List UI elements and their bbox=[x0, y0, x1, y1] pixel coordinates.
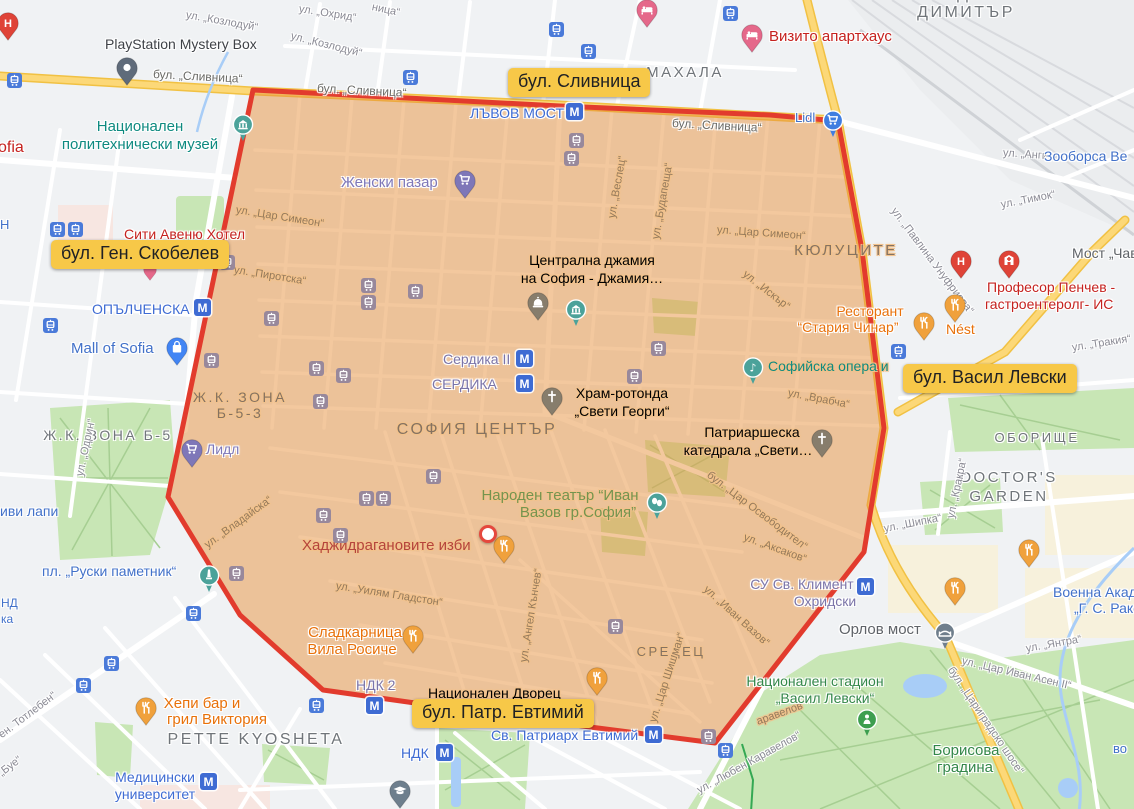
hotel-pin[interactable] bbox=[636, 0, 658, 33]
poi-fragment-n: Н bbox=[0, 218, 9, 233]
street-callout-skobelev: бул. Ген. Скобелев bbox=[51, 240, 229, 269]
district-label-line: СОФИЯ ЦЕНТЪР bbox=[397, 421, 557, 439]
metro-station-label-sv-patriarh-evtimiy: Св. Патриарх Евтимий bbox=[491, 728, 638, 744]
poi-rotonda: Храм-ротонда bbox=[576, 386, 668, 402]
poi-mall-of-sofia: Mall of Sofia bbox=[71, 341, 154, 358]
poi-divi-lapi: иви лапи bbox=[0, 504, 58, 520]
metro-icon-su-kliment-ohridski[interactable]: M bbox=[857, 578, 874, 595]
poi-naroden-teatar: Вазов гр.София” bbox=[520, 505, 636, 522]
metro-station-label-lavov-most: ЛЪВОВ МОСТ bbox=[470, 106, 564, 122]
poi-vizito: Визито апартхаус bbox=[769, 29, 892, 46]
tram-stop-icon[interactable] bbox=[43, 318, 58, 333]
metro-icon-opalchenska[interactable]: M bbox=[194, 299, 211, 316]
poi-vila-rosiche: Сладкарница bbox=[308, 625, 402, 642]
restaurant-pin-doctors[interactable] bbox=[1018, 539, 1040, 573]
tram-stop-icon-zone[interactable] bbox=[313, 394, 328, 409]
tram-stop-icon-zone[interactable] bbox=[569, 133, 584, 148]
mall-pin[interactable] bbox=[166, 337, 188, 371]
museum-pin-dzhamiya[interactable] bbox=[565, 299, 587, 334]
poi-katedrala: Патриаршеска bbox=[704, 425, 799, 441]
district-label-line: DOCTOR'S bbox=[960, 468, 1058, 487]
map-canvas[interactable]: МАХАЛАХАДЖИДИМИТЪРКЮЛУЦИТЕЖ.К. ЗОНАБ-5-3… bbox=[0, 0, 1134, 809]
metro-icon-ndk-2[interactable]: M bbox=[366, 697, 383, 714]
tram-stop-icon[interactable] bbox=[309, 698, 324, 713]
metro-station-label-serdika-2: Сердика II bbox=[443, 352, 510, 368]
poi-most-chavdar: Мост „Чавдар“ bbox=[1072, 246, 1134, 262]
street-label: ул. „Иван Вазов“ bbox=[701, 584, 772, 649]
metro-station-label-serdika: СЕРДИКА bbox=[432, 377, 497, 393]
tram-stop-icon-zone[interactable] bbox=[608, 619, 623, 634]
hospital-pin-building[interactable] bbox=[998, 250, 1020, 284]
svg-text:H: H bbox=[957, 256, 965, 268]
opera-pin[interactable]: ♪ bbox=[742, 357, 764, 392]
university-pin[interactable] bbox=[389, 780, 411, 809]
street-label: ул. „Уилям Гладстон“ bbox=[335, 580, 443, 609]
tram-stop-icon-zone[interactable] bbox=[359, 491, 374, 506]
playstation-pin[interactable] bbox=[116, 57, 138, 91]
tram-stop-icon[interactable] bbox=[7, 73, 22, 88]
poi-fragment-sofia: ofia bbox=[0, 139, 24, 157]
tram-stop-icon[interactable] bbox=[186, 606, 201, 621]
street-label: ул. „Охрид“ bbox=[298, 3, 357, 24]
tram-stop-icon-zone[interactable] bbox=[336, 368, 351, 383]
church-pin-rotonda[interactable] bbox=[541, 387, 563, 421]
poi-polytechnic-museum: Национален bbox=[97, 119, 184, 136]
district-label-doctors-garden: DOCTOR'SGARDEN bbox=[1009, 468, 1107, 506]
restaurant-pin-orlov[interactable] bbox=[944, 577, 966, 611]
tram-stop-icon-zone[interactable] bbox=[309, 361, 324, 376]
tram-stop-icon-zone[interactable] bbox=[564, 151, 579, 166]
poi-vila-rosiche: Вила Росиче bbox=[307, 642, 396, 659]
street-label: бул. „Сливница“ bbox=[672, 117, 762, 135]
tram-stop-icon[interactable] bbox=[76, 678, 91, 693]
metro-icon-lavov-most[interactable]: M bbox=[566, 103, 583, 120]
poi-fragment-nd: ка bbox=[1, 613, 13, 626]
street-label: ул. „Цар Иван Асен II“ bbox=[961, 655, 1073, 692]
tram-stop-icon[interactable] bbox=[891, 344, 906, 359]
tram-stop-icon-zone[interactable] bbox=[376, 491, 391, 506]
district-label-oborishte: ОБОРИЩЕ bbox=[1037, 430, 1122, 445]
mosque-pin[interactable] bbox=[527, 292, 549, 326]
street-label: ул. „Янтра“ bbox=[1025, 633, 1083, 655]
tram-stop-icon-zone[interactable] bbox=[229, 566, 244, 581]
tram-stop-icon[interactable] bbox=[581, 44, 596, 59]
restaurant-pin-hepi-bar[interactable] bbox=[135, 697, 157, 731]
street-label: „Буе“ bbox=[0, 754, 24, 779]
metro-station-label-su-kliment-ohridski: СУ Св. Климент bbox=[750, 577, 853, 593]
metro-icon-sv-patriarh-evtimiy[interactable]: M bbox=[645, 726, 662, 743]
tram-stop-icon[interactable] bbox=[718, 743, 733, 758]
map-labels-layer: МАХАЛАХАДЖИДИМИТЪРКЮЛУЦИТЕЖ.К. ЗОНАБ-5-3… bbox=[0, 0, 1134, 809]
poi-dzhamiya: Централна джамия bbox=[529, 253, 655, 269]
district-label-line: Ж.К. ЗОНА Б-5 bbox=[43, 427, 172, 443]
poi-katedrala: катедрала „Свети… bbox=[684, 443, 813, 459]
theatre-pin[interactable] bbox=[646, 492, 668, 527]
poi-voenna-akademia: Военна Академия bbox=[1053, 585, 1134, 601]
district-label-line: Ж.К. ЗОНА bbox=[193, 389, 287, 405]
metro-station-label-su-kliment-ohridski: Охридски bbox=[794, 594, 856, 610]
restaurant-pin-hadzhidraganovite[interactable] bbox=[493, 535, 515, 569]
street-label: ул. „Тракия“ bbox=[1071, 333, 1132, 354]
poi-dzhamiya: на София - Джамия… bbox=[521, 271, 663, 287]
poi-zhenski-pazar: Женски пазар bbox=[341, 175, 438, 192]
poi-lidl-store: Lidl bbox=[795, 111, 815, 126]
tram-stop-icon-zone[interactable] bbox=[627, 369, 642, 384]
hospital-pin-h[interactable]: H bbox=[950, 250, 972, 284]
street-label: ул. „Ангел Кънчев“ bbox=[518, 568, 545, 663]
tram-stop-icon-zone[interactable] bbox=[426, 469, 441, 484]
poi-rotonda: „Свети Георги“ bbox=[574, 404, 669, 420]
street-label: бул. „Сливница“ bbox=[317, 82, 407, 100]
poi-stadion: Национален стадион bbox=[746, 674, 883, 690]
street-callout-vasil-levski: бул. Васил Левски bbox=[903, 364, 1077, 393]
metro-icon-meditsinski-universitet[interactable]: M bbox=[200, 773, 217, 790]
poi-stariya-chinar: Ресторант bbox=[836, 304, 903, 320]
poi-zooborsa: Зооборса Ве bbox=[1044, 149, 1127, 165]
hotel-pin-vizito[interactable] bbox=[741, 24, 763, 58]
street-label: ул. „Искър“ bbox=[740, 268, 792, 312]
restaurant-pin-nest[interactable] bbox=[944, 294, 966, 328]
tram-stop-icon-zone[interactable] bbox=[333, 528, 348, 543]
bridge-pin-orlov[interactable] bbox=[934, 622, 956, 657]
poi-fragment-nd: НД bbox=[1, 597, 18, 610]
tram-stop-icon-zone[interactable] bbox=[361, 295, 376, 310]
metro-icon-ndk[interactable]: M bbox=[436, 744, 453, 761]
metro-station-label-ndk-2: НДК 2 bbox=[356, 678, 395, 694]
monument-pin-ruski[interactable] bbox=[198, 565, 220, 600]
district-label-line: Б-5-3 bbox=[193, 405, 287, 421]
street-label: ул. „Шипка“ bbox=[883, 512, 943, 535]
poi-voenna-akademia: „Г. С. Раковски“ bbox=[1074, 601, 1134, 617]
tram-stop-icon-zone[interactable] bbox=[701, 729, 716, 744]
tram-stop-icon[interactable] bbox=[104, 656, 119, 671]
church-pin-katedrala[interactable] bbox=[811, 429, 833, 463]
tram-stop-icon-zone[interactable] bbox=[361, 278, 376, 293]
svg-text:H: H bbox=[4, 18, 12, 30]
street-label: ул. „Веслец“ bbox=[606, 155, 629, 219]
district-label-mahala: МАХАЛА bbox=[685, 64, 763, 81]
poi-lidl: Лидл bbox=[206, 442, 239, 458]
district-label-line: ДИМИТЪР bbox=[917, 4, 1015, 22]
street-label: ул. „Пиротска“ bbox=[233, 264, 307, 288]
district-label-line: PETTE KYOSHETA bbox=[168, 731, 345, 749]
district-label-line: GARDEN bbox=[960, 487, 1058, 506]
poi-ruski-pametnik: пл. „Руски паметник“ bbox=[42, 564, 176, 580]
tram-stop-icon[interactable] bbox=[549, 22, 564, 37]
street-callout-patr-evtimiy: бул. Патр. Евтимий bbox=[412, 699, 594, 728]
restaurant-pin-sredets[interactable] bbox=[586, 667, 608, 701]
tram-stop-icon[interactable] bbox=[50, 222, 65, 237]
poi-fragment-vo: во bbox=[1113, 742, 1127, 757]
street-label: ул. „Козлодуй“ bbox=[185, 9, 259, 34]
district-label-sofia-centar: СОФИЯ ЦЕНТЪР bbox=[477, 421, 637, 439]
tram-stop-icon-zone[interactable] bbox=[204, 353, 219, 368]
street-label: ул. „Врабча“ bbox=[787, 387, 851, 411]
street-label: ен. Тотлебен“ bbox=[0, 690, 59, 742]
stadium-pin[interactable] bbox=[856, 709, 878, 744]
museum-pin-polytechnic[interactable] bbox=[232, 114, 254, 149]
market-pin-lidl[interactable] bbox=[181, 439, 203, 473]
district-label-line: МАХАЛА bbox=[646, 64, 724, 81]
tram-stop-icon-zone[interactable] bbox=[651, 341, 666, 356]
street-label: ул. „Владайска“ bbox=[202, 494, 274, 551]
poi-borisova: градина bbox=[937, 760, 993, 777]
metro-station-label-ndk: НДК bbox=[401, 746, 429, 762]
poi-polytechnic-museum: политехнически музей bbox=[62, 137, 218, 154]
poi-playstation: PlayStation Mystery Box bbox=[105, 37, 257, 53]
tram-stop-icon-zone[interactable] bbox=[264, 311, 279, 326]
metro-station-label-opalchenska: ОПЪЛЧЕНСКА bbox=[92, 302, 190, 318]
tram-stop-icon[interactable] bbox=[403, 70, 418, 85]
poi-hepi-bar: грил Виктория bbox=[167, 712, 267, 729]
svg-text:♪: ♪ bbox=[749, 362, 756, 375]
metro-icon-serdika[interactable]: M bbox=[516, 375, 533, 392]
market-pin-lidl-blue[interactable] bbox=[822, 110, 844, 145]
district-label-hadzhi-dimitar: ХАДЖИДИМИТЪР bbox=[966, 0, 1064, 22]
metro-icon-serdika-2[interactable]: M bbox=[516, 350, 533, 367]
district-label-line: ОБОРИЩЕ bbox=[995, 430, 1080, 445]
poi-borisova: Борисова bbox=[932, 743, 999, 760]
tram-stop-icon[interactable] bbox=[68, 222, 83, 237]
restaurant-pin-rosiche[interactable] bbox=[402, 625, 424, 659]
street-label: ул. „Тимок“ bbox=[1000, 189, 1056, 212]
street-label: ул. „Цар Симеон“ bbox=[717, 224, 806, 242]
restaurant-pin-chinar[interactable] bbox=[913, 312, 935, 346]
tram-stop-icon-zone[interactable] bbox=[316, 508, 331, 523]
poi-naroden-teatar: Народен театър “Иван bbox=[481, 488, 638, 505]
location-marker[interactable] bbox=[479, 525, 497, 543]
street-label: бул. „Сливница“ bbox=[153, 68, 243, 86]
poi-hadzhidraganovite: Хаджидрагановите изби bbox=[302, 538, 471, 555]
poi-prof-penchev: гастроентеролг- ИС bbox=[985, 297, 1113, 313]
hospital-pin-left[interactable]: H bbox=[0, 12, 19, 46]
street-label: ул. „Козлодуй“ bbox=[290, 30, 364, 60]
market-pin-zhenski-pazar[interactable] bbox=[454, 170, 476, 204]
poi-opera: Софийска опера и bbox=[768, 359, 889, 375]
poi-stariya-chinar: “Стария Чинар” bbox=[797, 320, 898, 336]
tram-stop-icon[interactable] bbox=[723, 6, 738, 21]
street-callout-slivnitsa: бул. Сливница bbox=[508, 68, 650, 97]
poi-stadion: „Васил Левски“ bbox=[776, 691, 875, 707]
street-label: ница“ bbox=[371, 1, 401, 19]
street-label: ул. „Цар Симеон“ bbox=[235, 204, 325, 230]
tram-stop-icon-zone[interactable] bbox=[408, 284, 423, 299]
district-label-line: КЮЛУЦИТЕ bbox=[794, 242, 898, 259]
metro-station-label-meditsinski-universitet: Медицински bbox=[115, 770, 195, 786]
street-label: ул. „Будапеща“ bbox=[650, 162, 675, 240]
metro-station-label-meditsinski-universitet: университет bbox=[115, 787, 195, 803]
poi-orlov-most: Орлов мост bbox=[839, 622, 921, 639]
